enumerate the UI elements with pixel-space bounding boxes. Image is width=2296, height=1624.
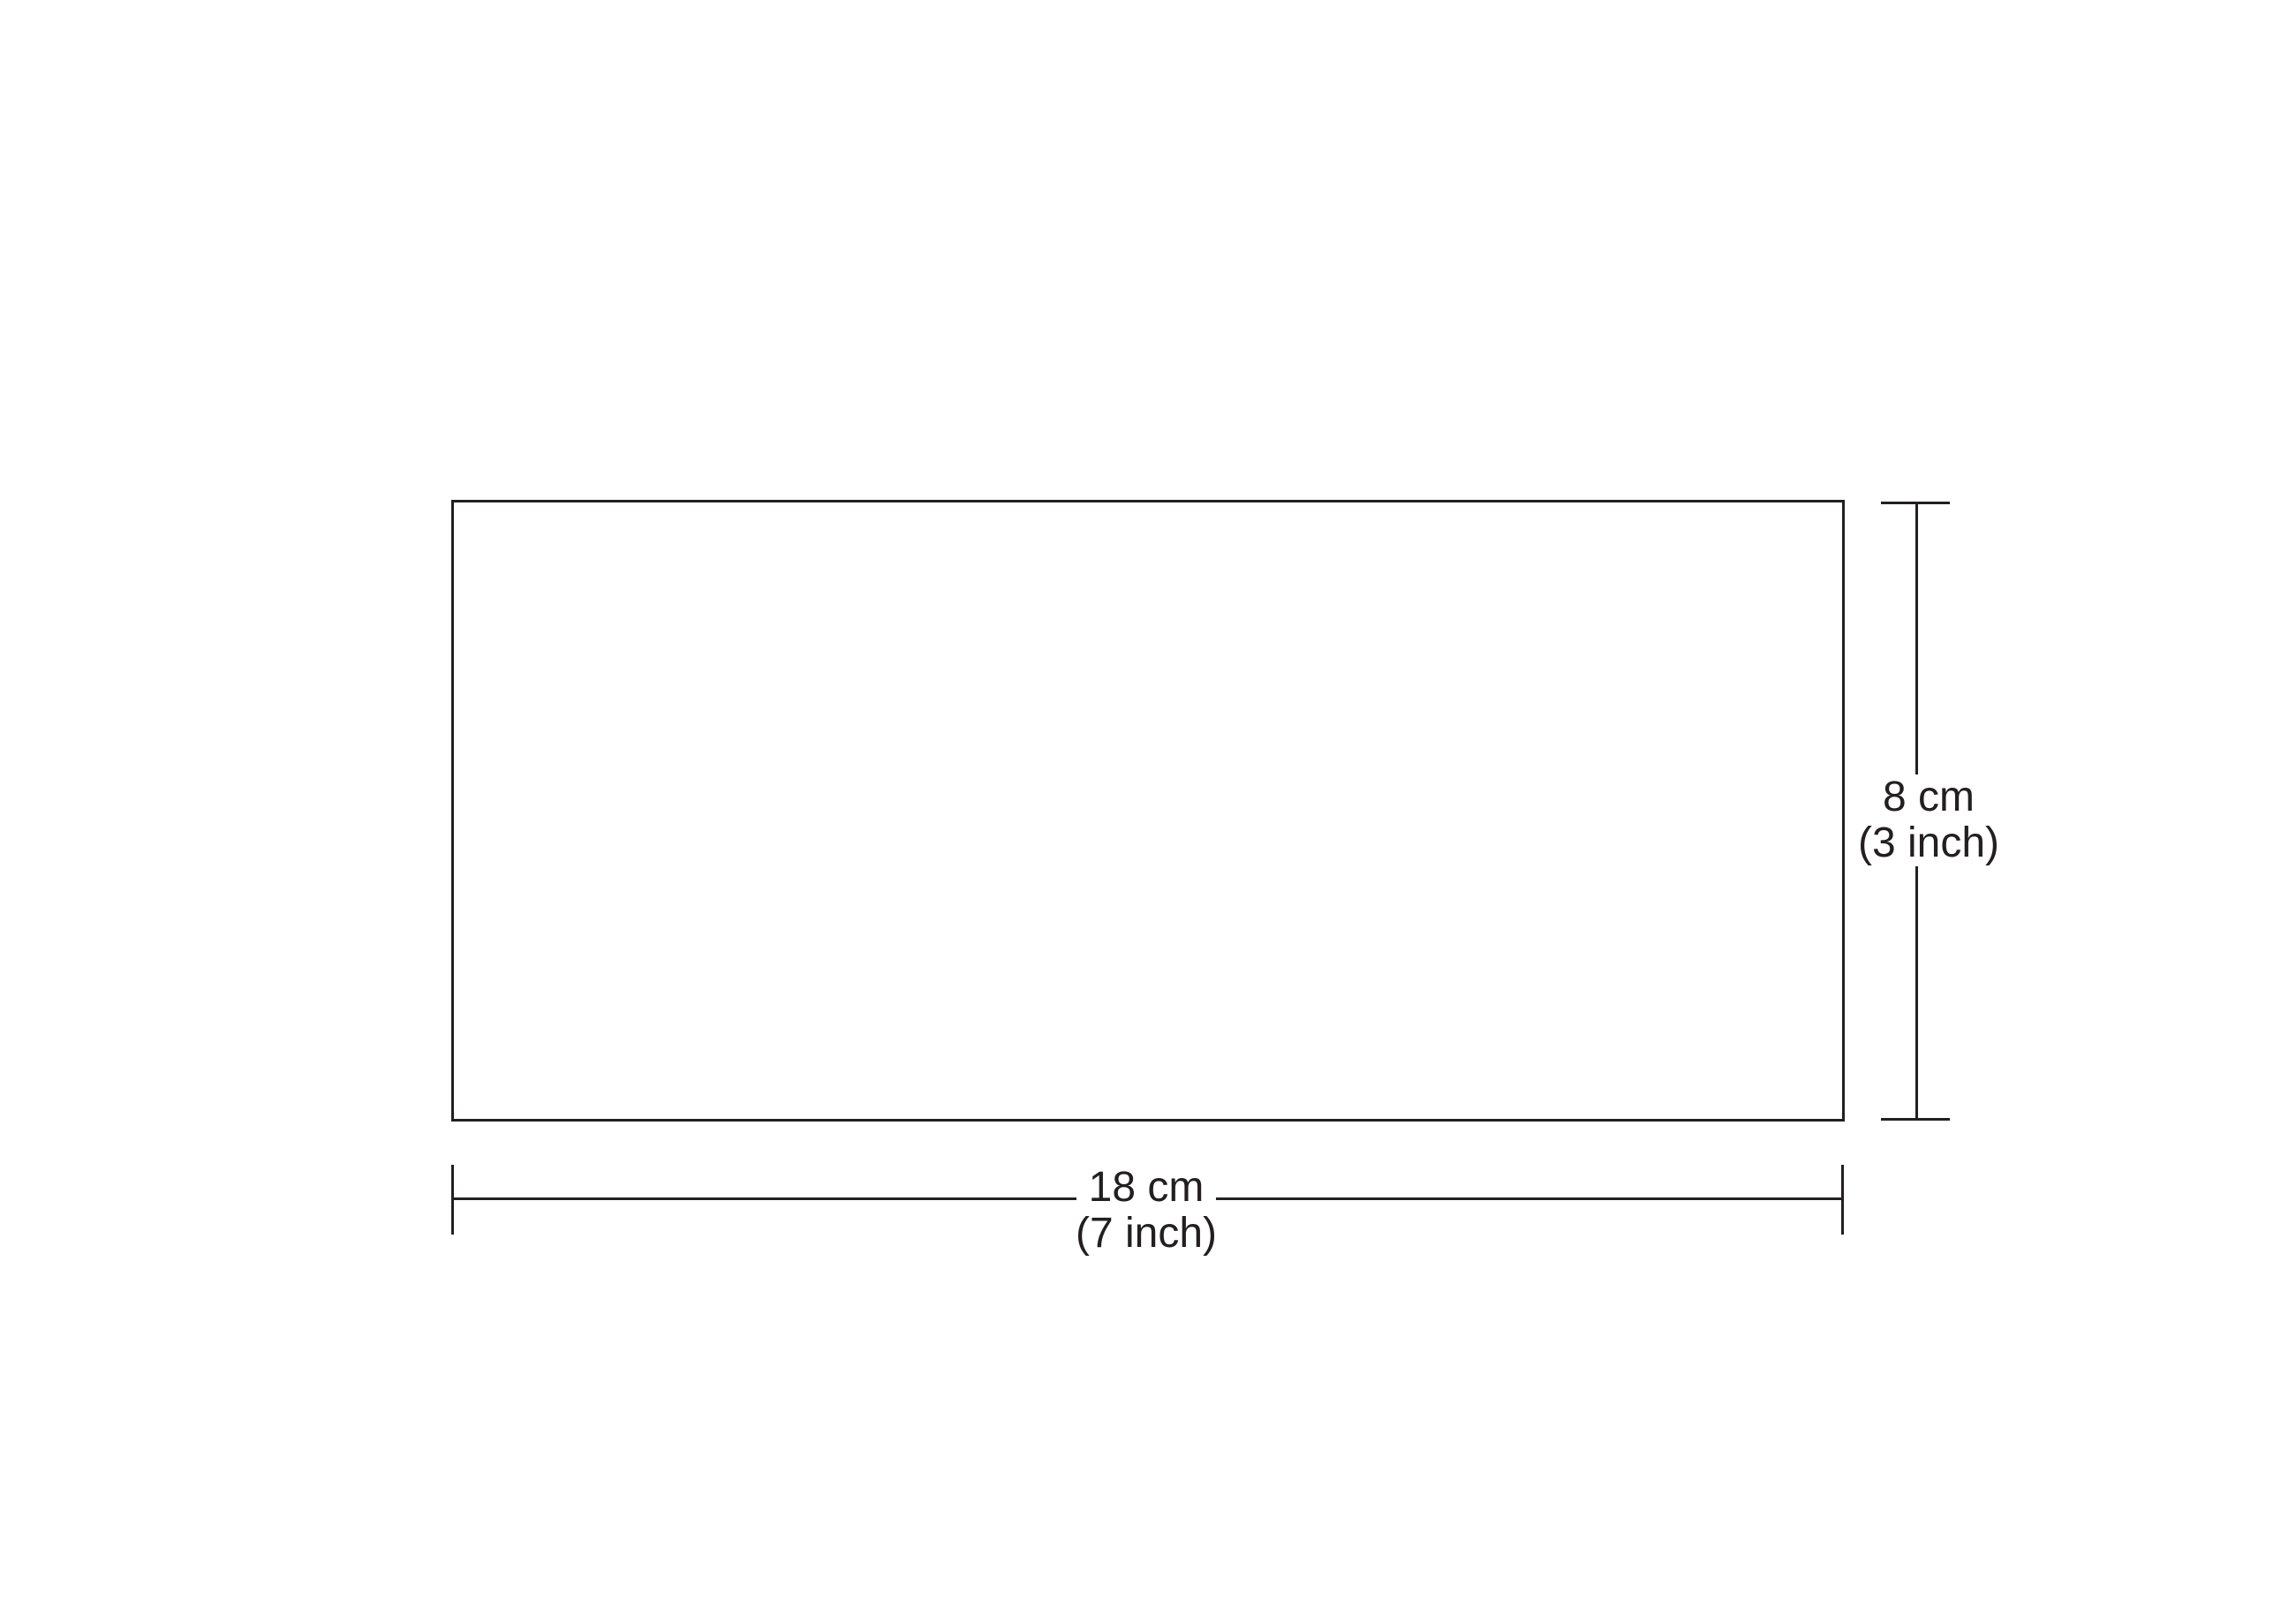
height-value-cm: 8 cm	[1876, 774, 1982, 820]
height-dimension-bottom-tick	[1881, 1118, 1950, 1121]
width-dimension-label: 18 cm (7 inch)	[1063, 1165, 1229, 1257]
height-dimension-label: 8 cm (3 inch)	[1851, 774, 2006, 866]
height-value-inch: (3 inch)	[1851, 820, 2006, 866]
width-value-inch: (7 inch)	[1063, 1211, 1229, 1257]
height-dimension-top-tick	[1881, 502, 1950, 504]
rectangle-shape	[451, 500, 1845, 1122]
diagram-canvas: 18 cm (7 inch) 8 cm (3 inch)	[0, 0, 2296, 1624]
width-value-cm: 18 cm	[1076, 1165, 1217, 1211]
width-dimension-right-tick	[1841, 1165, 1844, 1235]
width-dimension-left-tick	[451, 1165, 454, 1235]
